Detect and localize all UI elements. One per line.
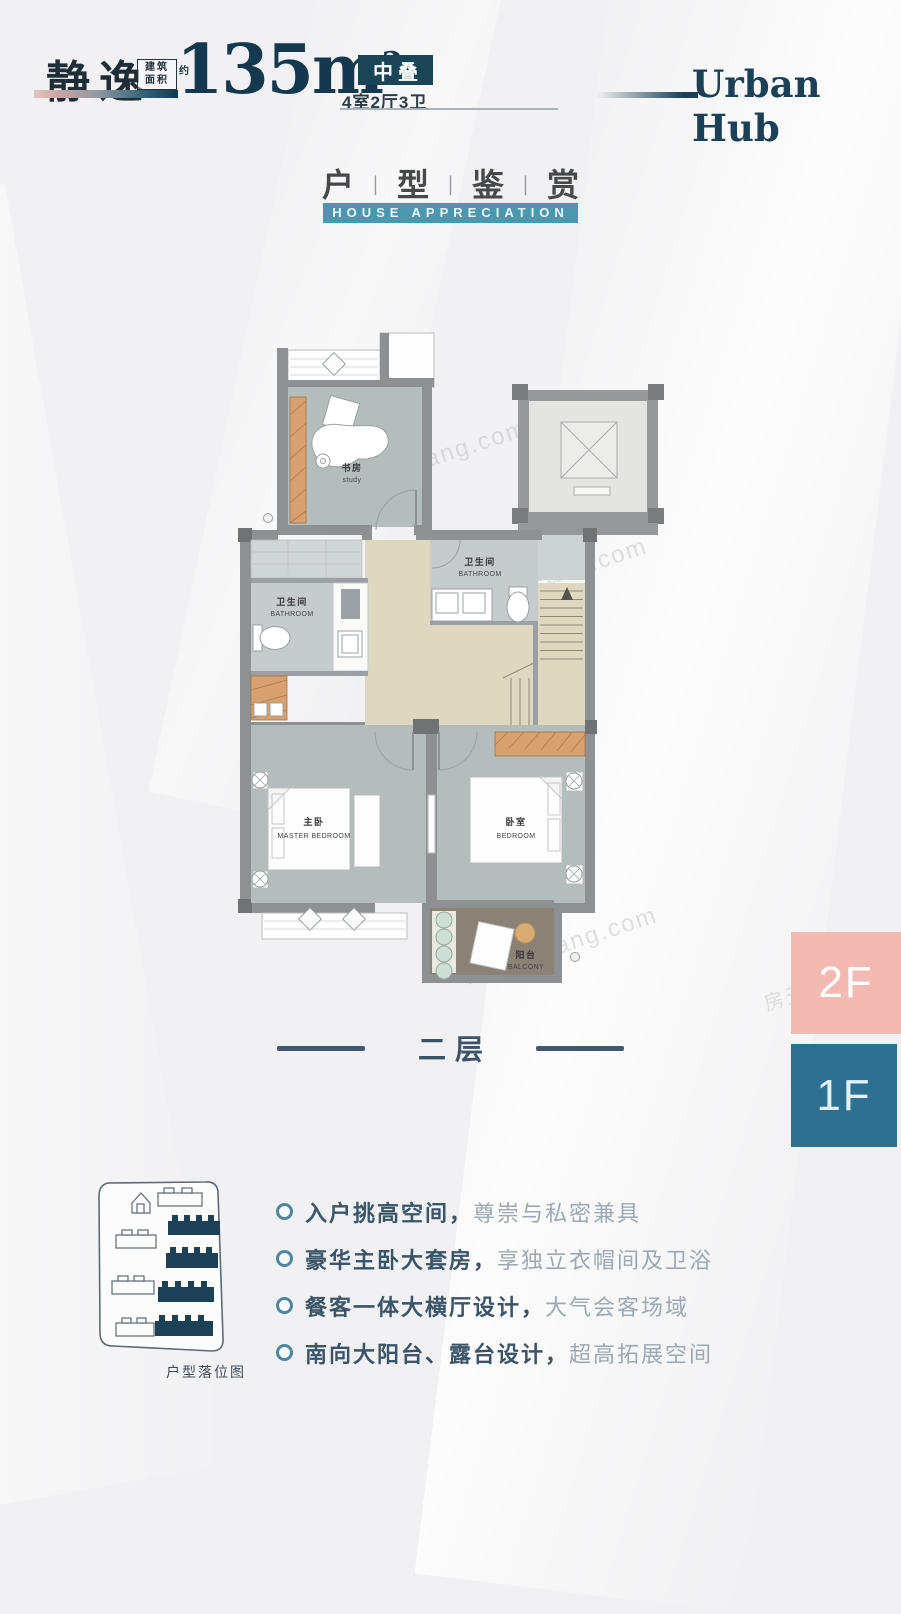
plant [436,912,452,928]
title-char: 鉴 [472,160,504,206]
study-label-en: study [343,477,362,484]
bedroom-label-zh: 卧室 [505,816,526,827]
feature-bold: 餐客一体大横厅设计， [305,1290,545,1322]
closet [290,397,306,523]
bullet-ring-icon [276,1203,293,1220]
master-label-zh: 主卧 [303,816,324,827]
title-separator: 丨 [517,167,534,198]
site-location-map [92,1175,237,1360]
site-map-caption: 户型落位图 [166,1362,246,1382]
feature-item: 南向大阳台、露台设计， 超高拓展空间 [276,1339,776,1366]
gradient-underline [34,90,178,98]
bullet-ring-icon [276,1297,293,1314]
plant [436,929,452,945]
floor-plan: 书房 study [230,325,670,1015]
feature-item: 餐客一体大横厅设计， 大气会客场域 [276,1292,776,1319]
floor-label-row: 二层 [0,1028,901,1068]
feature-list: 入户挑高空间， 尊崇与私密兼具 豪华主卧大套房， 享独立衣帽间及卫浴 餐客一体大… [276,1198,776,1386]
brand-line [596,92,698,98]
bullet-ring-icon [276,1344,293,1361]
bullet-ring-icon [276,1250,293,1267]
balcony-label-zh: 阳台 [515,949,536,960]
room-study: 书房 study [264,333,435,535]
toilet [507,592,529,622]
feature-light: 享独立衣帽间及卫浴 [497,1243,713,1275]
bathroom-left-zh: 卫生间 [276,596,308,607]
master-label-en: MASTER BEDROOM [278,833,351,840]
closet-strip [251,540,362,578]
sink-counter [432,589,492,621]
room-bathroom-right: 卫生间 BATHROOM [430,540,538,625]
feature-item: 豪华主卧大套房， 享独立衣帽间及卫浴 [276,1245,776,1272]
exterior-marker [264,514,273,523]
dash-left [277,1046,365,1051]
brand-logo: Urban Hub [692,62,901,150]
title-char: 户 [322,160,354,206]
feature-light: 尊崇与私密兼具 [473,1196,641,1228]
dash-right [536,1046,624,1051]
title-separator: 丨 [367,167,384,198]
bathroom-right-zh: 卫生间 [464,556,496,567]
bathroom-left-en: BATHROOM [270,611,313,618]
title-char: 型 [397,160,429,206]
exterior-marker [571,953,580,962]
room-balcony: 阳台 BALCONY [422,900,580,983]
feature-item: 入户挑高空间， 尊崇与私密兼具 [276,1198,776,1225]
area-label-box: 建筑 面积 [137,59,177,90]
floor-label: 二层 [409,1028,492,1068]
table [515,923,535,943]
floor-tab-1f[interactable]: 1F [791,1044,897,1147]
wardrobe [495,732,585,756]
area-label-line2: 面积 [145,75,169,88]
toilet [260,627,290,650]
feature-bold: 入户挑高空间， [305,1196,473,1228]
area-label-line1: 建筑 [145,62,169,75]
room-bathroom-left: 卫生间 BATHROOM [251,540,368,720]
layout-underline [340,108,558,110]
balcony-label-en: BALCONY [508,964,544,971]
title-char: 赏 [547,160,579,206]
bathroom-right-en: BATHROOM [458,571,501,578]
feature-light: 超高拓展空间 [569,1337,713,1369]
section-title: 户 丨 型 丨 鉴 丨 赏 [0,160,901,206]
feature-bold: 豪华主卧大套房， [305,1243,497,1275]
section-subtitle-wrap: HOUSE APPRECIATION [0,203,901,223]
feature-light: 大气会客场域 [545,1290,689,1322]
plant [436,963,452,979]
entry-vestibule [537,535,585,580]
unit-type-badge: 中叠 [358,55,433,85]
bedroom-label-en: BEDROOM [497,833,536,840]
feature-bold: 南向大阳台、露台设计， [305,1337,569,1369]
floor-tab-2f[interactable]: 2F [791,932,901,1034]
section-subtitle: HOUSE APPRECIATION [323,203,578,223]
title-separator: 丨 [442,167,459,198]
plant [436,946,452,962]
study-label-zh: 书房 [341,462,362,473]
